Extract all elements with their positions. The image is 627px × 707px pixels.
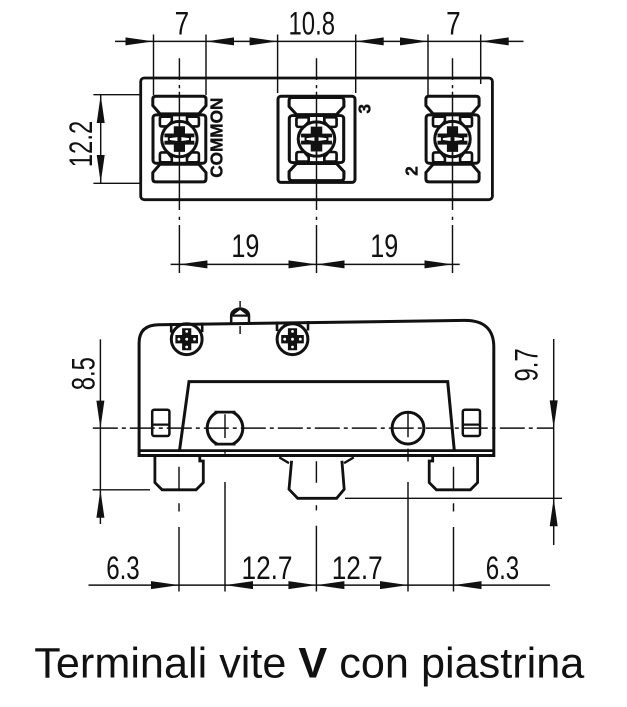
svg-text:8.5: 8.5: [66, 357, 102, 390]
svg-text:COMMON: COMMON: [207, 98, 227, 178]
svg-text:3: 3: [354, 104, 374, 114]
svg-text:6.3: 6.3: [106, 550, 140, 586]
svg-text:12.2: 12.2: [63, 121, 99, 167]
svg-text:12.7: 12.7: [242, 550, 293, 586]
svg-text:7: 7: [446, 5, 461, 41]
svg-text:2: 2: [401, 166, 421, 176]
svg-text:Terminali vite V con piastrina: Terminali vite V con piastrina: [34, 640, 584, 688]
svg-text:19: 19: [231, 228, 259, 264]
svg-text:10.8: 10.8: [289, 5, 336, 41]
svg-text:9.7: 9.7: [509, 348, 545, 381]
svg-text:19: 19: [370, 228, 398, 264]
svg-text:12.7: 12.7: [332, 550, 383, 586]
svg-text:6.3: 6.3: [486, 550, 520, 586]
svg-text:7: 7: [175, 5, 190, 41]
